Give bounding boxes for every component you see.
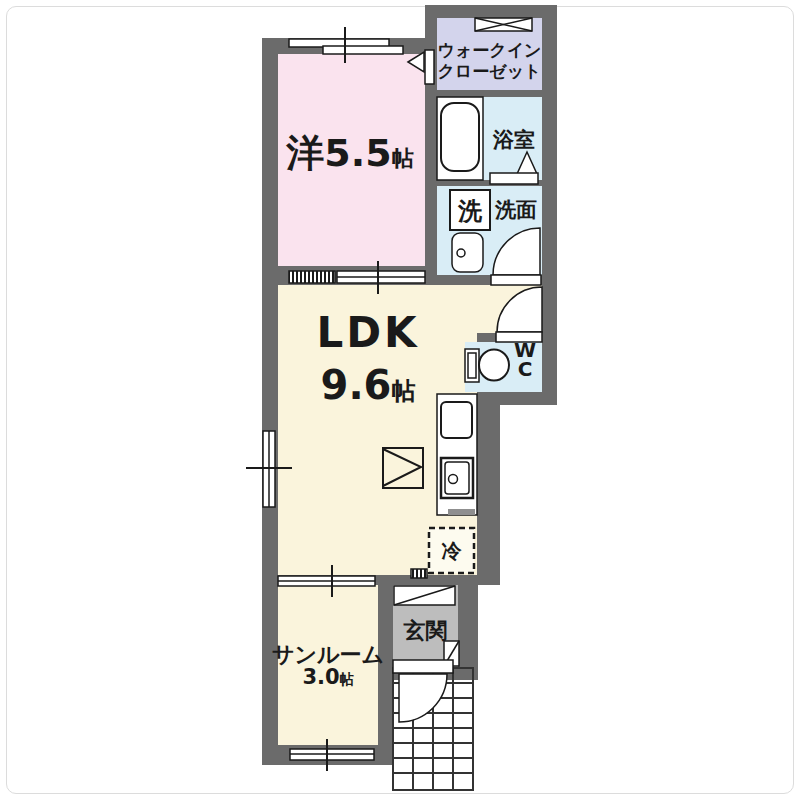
bathtub-icon (441, 103, 479, 171)
kitchen-faucet-icon (449, 475, 458, 484)
entrance-label: 玄関 (393, 616, 458, 646)
entrance-sill-marker (411, 569, 427, 578)
toilet-bowl-icon (479, 350, 509, 381)
sunroom-unit-text: 帖 (340, 671, 354, 689)
ldk-unit-text: 帖 (391, 375, 415, 407)
entrance-step (393, 660, 453, 673)
bath-door-leaf (490, 173, 538, 184)
sunroom-size-label: 3.0帖 (268, 665, 388, 689)
floor-plan: 洋5.5帖 ウォークイン クローゼット 浴室 洗 洗面 LDK 9.6帖 W C… (0, 0, 800, 800)
ldk-label: LDK (278, 308, 458, 357)
western-room-unit-text: 帖 (392, 144, 414, 174)
closet-door-leaf (425, 50, 434, 84)
window-west-top-pane (323, 46, 403, 54)
walk-in-closet-label: ウォークイン クローゼット (437, 40, 542, 82)
ldk-size-text: 9.6 (321, 362, 392, 408)
walk-in-closet-line1: ウォークイン (437, 40, 542, 61)
counter-edge (448, 509, 475, 515)
western-room-label: 洋5.5帖 (275, 128, 425, 182)
western-room-size-text: 洋5.5 (286, 128, 391, 179)
wc-label: W C (508, 341, 542, 379)
wall-porch-side (378, 680, 393, 753)
ldk-size-label: 9.6帖 (278, 362, 458, 408)
washroom-door-leaf (491, 275, 541, 285)
vanity-faucet-icon (457, 249, 465, 257)
sliding-door-pocket (289, 271, 335, 283)
walk-in-closet-line2: クローゼット (437, 61, 542, 82)
washroom-label: 洗面 (488, 196, 544, 224)
wc-line2: C (508, 360, 542, 379)
bathroom-label: 浴室 (483, 126, 545, 154)
toilet-tank-inner (468, 353, 476, 378)
laundry-label: 洗 (450, 192, 490, 230)
refrigerator-label: 冷 (429, 534, 474, 568)
front-door-arc (399, 674, 447, 722)
sunroom-size-text: 3.0 (302, 665, 339, 689)
